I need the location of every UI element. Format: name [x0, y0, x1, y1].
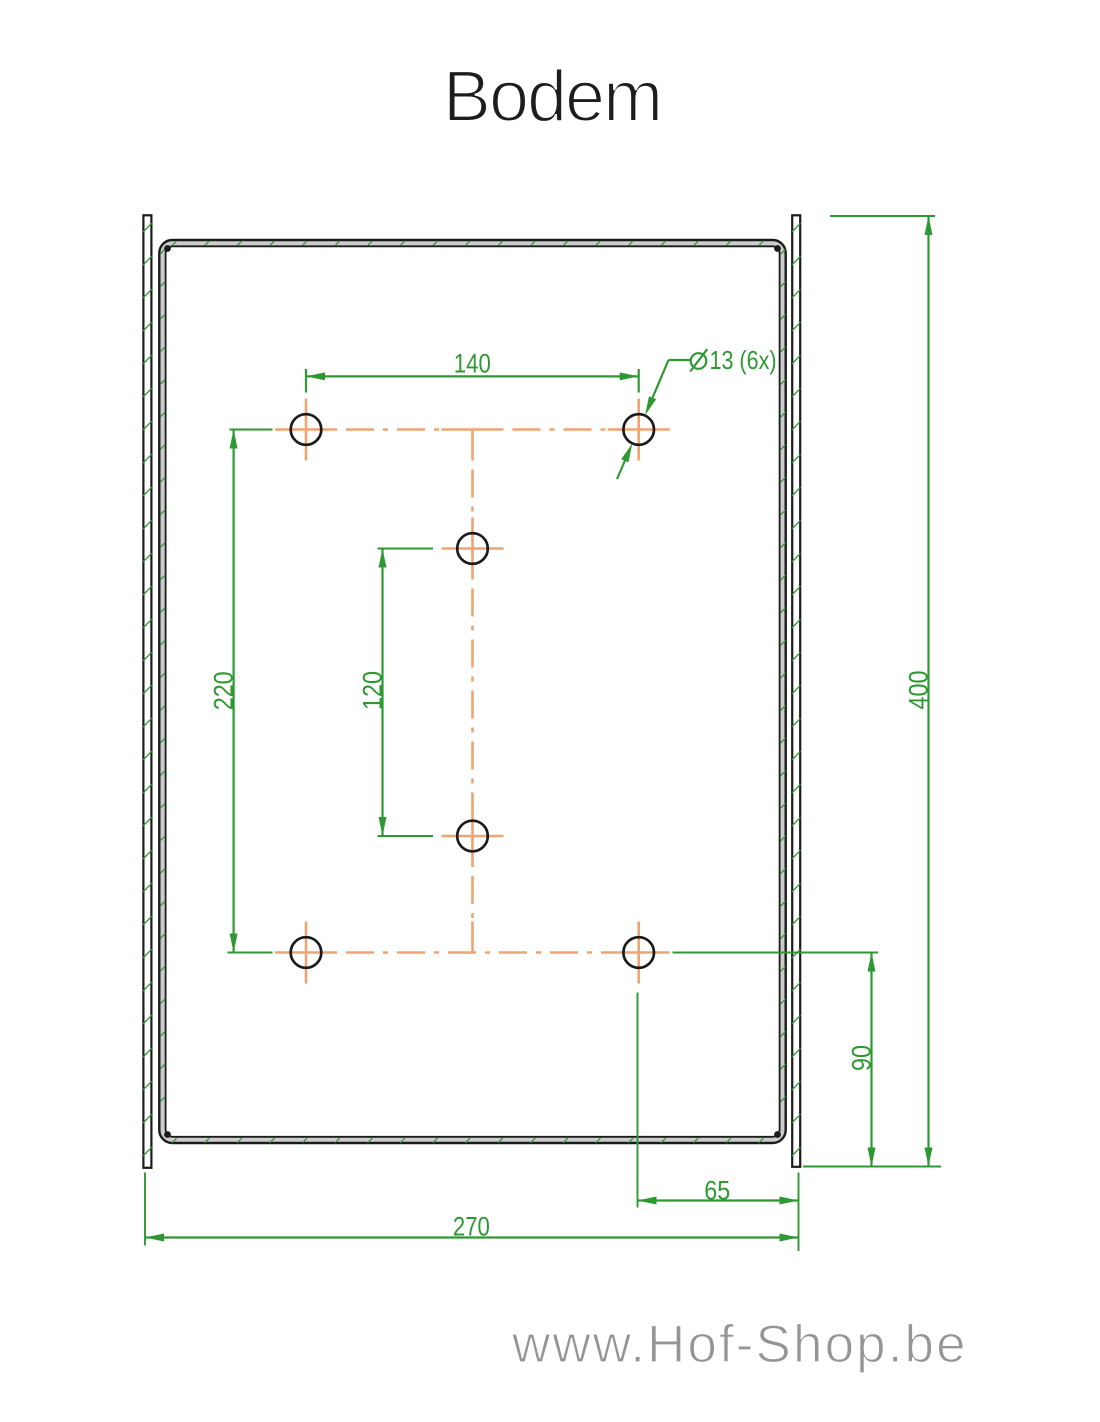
svg-text:140: 140 — [454, 349, 491, 379]
svg-text:400: 400 — [903, 671, 933, 710]
svg-text:Bodem: Bodem — [443, 57, 661, 137]
svg-text:65: 65 — [704, 1176, 730, 1206]
svg-text:13 (6x): 13 (6x) — [710, 345, 777, 375]
svg-text:www.Hof-Shop.be: www.Hof-Shop.be — [511, 1315, 968, 1374]
svg-text:220: 220 — [208, 671, 238, 710]
svg-text:90: 90 — [846, 1045, 876, 1071]
svg-text:120: 120 — [357, 671, 387, 710]
svg-text:270: 270 — [453, 1212, 490, 1242]
